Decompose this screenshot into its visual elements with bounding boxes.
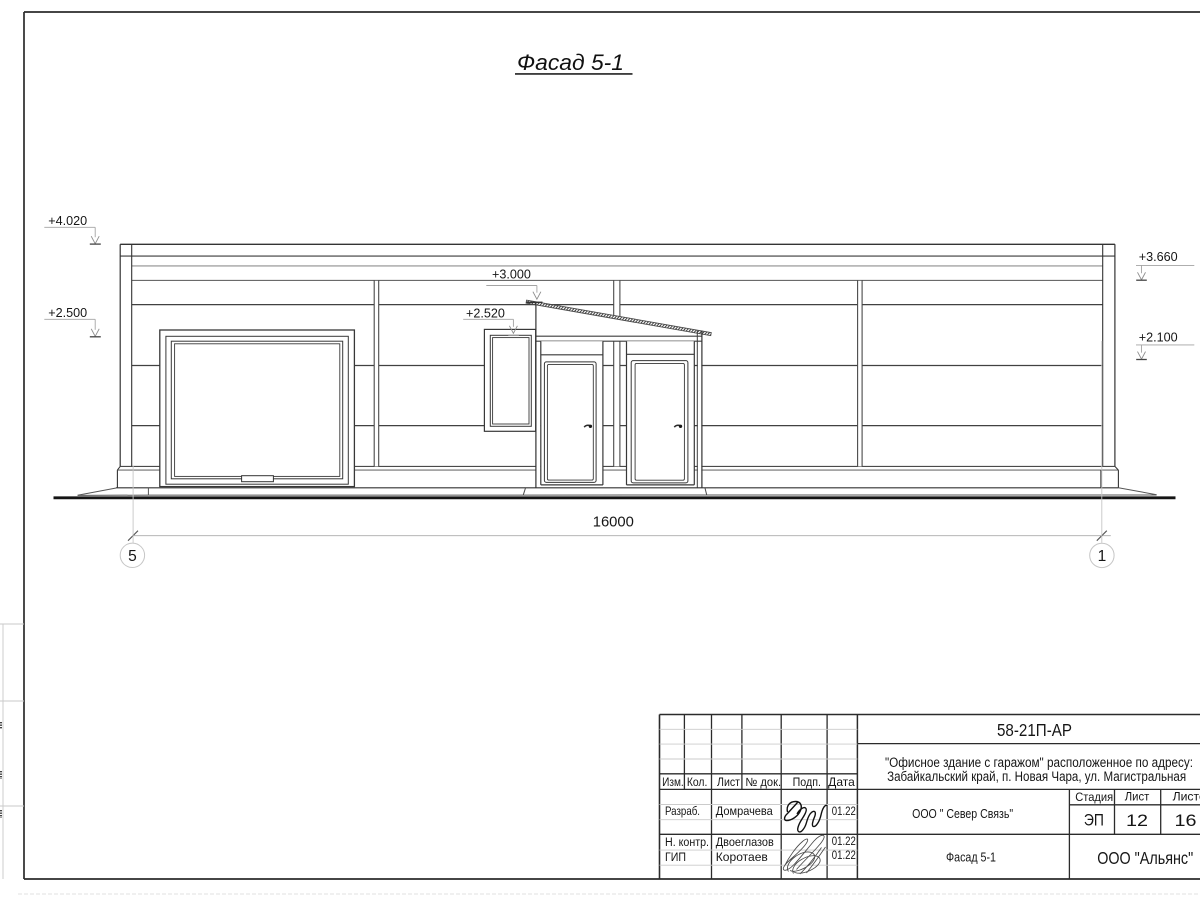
- svg-text:+3.660: +3.660: [1139, 250, 1178, 264]
- svg-text:+2.100: +2.100: [1139, 331, 1178, 345]
- svg-text:5: 5: [128, 548, 137, 565]
- svg-text:Кол.: Кол.: [687, 775, 708, 789]
- svg-text:+2.500: +2.500: [48, 306, 87, 320]
- svg-text:+3.000: +3.000: [492, 268, 531, 282]
- svg-text:ЭП: ЭП: [1084, 810, 1104, 829]
- svg-text:Подп.: Подп.: [793, 775, 821, 789]
- svg-text:58-21П-АР: 58-21П-АР: [997, 720, 1072, 740]
- svg-text:+4.020: +4.020: [48, 214, 87, 228]
- svg-text:"Офисное здание с гаражом" рас: "Офисное здание с гаражом" расположенное…: [885, 755, 1193, 770]
- svg-text:ГИП: ГИП: [665, 850, 686, 864]
- svg-text:Разраб.: Разраб.: [665, 804, 700, 818]
- svg-text:Листов: Листов: [1173, 790, 1200, 804]
- svg-text:Фасад 5-1: Фасад 5-1: [946, 850, 996, 864]
- svg-text:Забайкальский край, п. Новая Ч: Забайкальский край, п. Новая Чара, ул. М…: [887, 769, 1186, 784]
- svg-text:01.22: 01.22: [832, 848, 856, 862]
- svg-text:Н. контр.: Н. контр.: [665, 835, 709, 849]
- svg-text:Изм.: Изм.: [662, 775, 684, 789]
- svg-text:Лист: Лист: [717, 775, 741, 789]
- svg-text:+2.520: +2.520: [466, 306, 505, 320]
- svg-text:ООО " Север Связь": ООО " Север Связь": [912, 807, 1013, 821]
- svg-text:Коротаев: Коротаев: [716, 850, 768, 864]
- svg-text:Дата: Дата: [828, 775, 855, 789]
- svg-text:01.22: 01.22: [832, 804, 856, 818]
- svg-text:1: 1: [1098, 548, 1107, 565]
- svg-text:№ док.: № док.: [745, 775, 781, 789]
- svg-text:ООО "Альянс": ООО "Альянс": [1097, 848, 1193, 868]
- svg-text:12: 12: [1126, 811, 1148, 830]
- svg-text:16: 16: [1175, 811, 1197, 830]
- svg-text:Фасад 5-1: Фасад 5-1: [517, 50, 624, 75]
- svg-text:16000: 16000: [593, 515, 634, 531]
- svg-text:01.22: 01.22: [832, 834, 856, 848]
- svg-text:Стадия: Стадия: [1075, 790, 1113, 804]
- svg-text:Лист: Лист: [1125, 790, 1150, 804]
- svg-text:Двоеглазов: Двоеглазов: [716, 835, 774, 849]
- svg-text:Домрачева: Домрачева: [716, 804, 773, 818]
